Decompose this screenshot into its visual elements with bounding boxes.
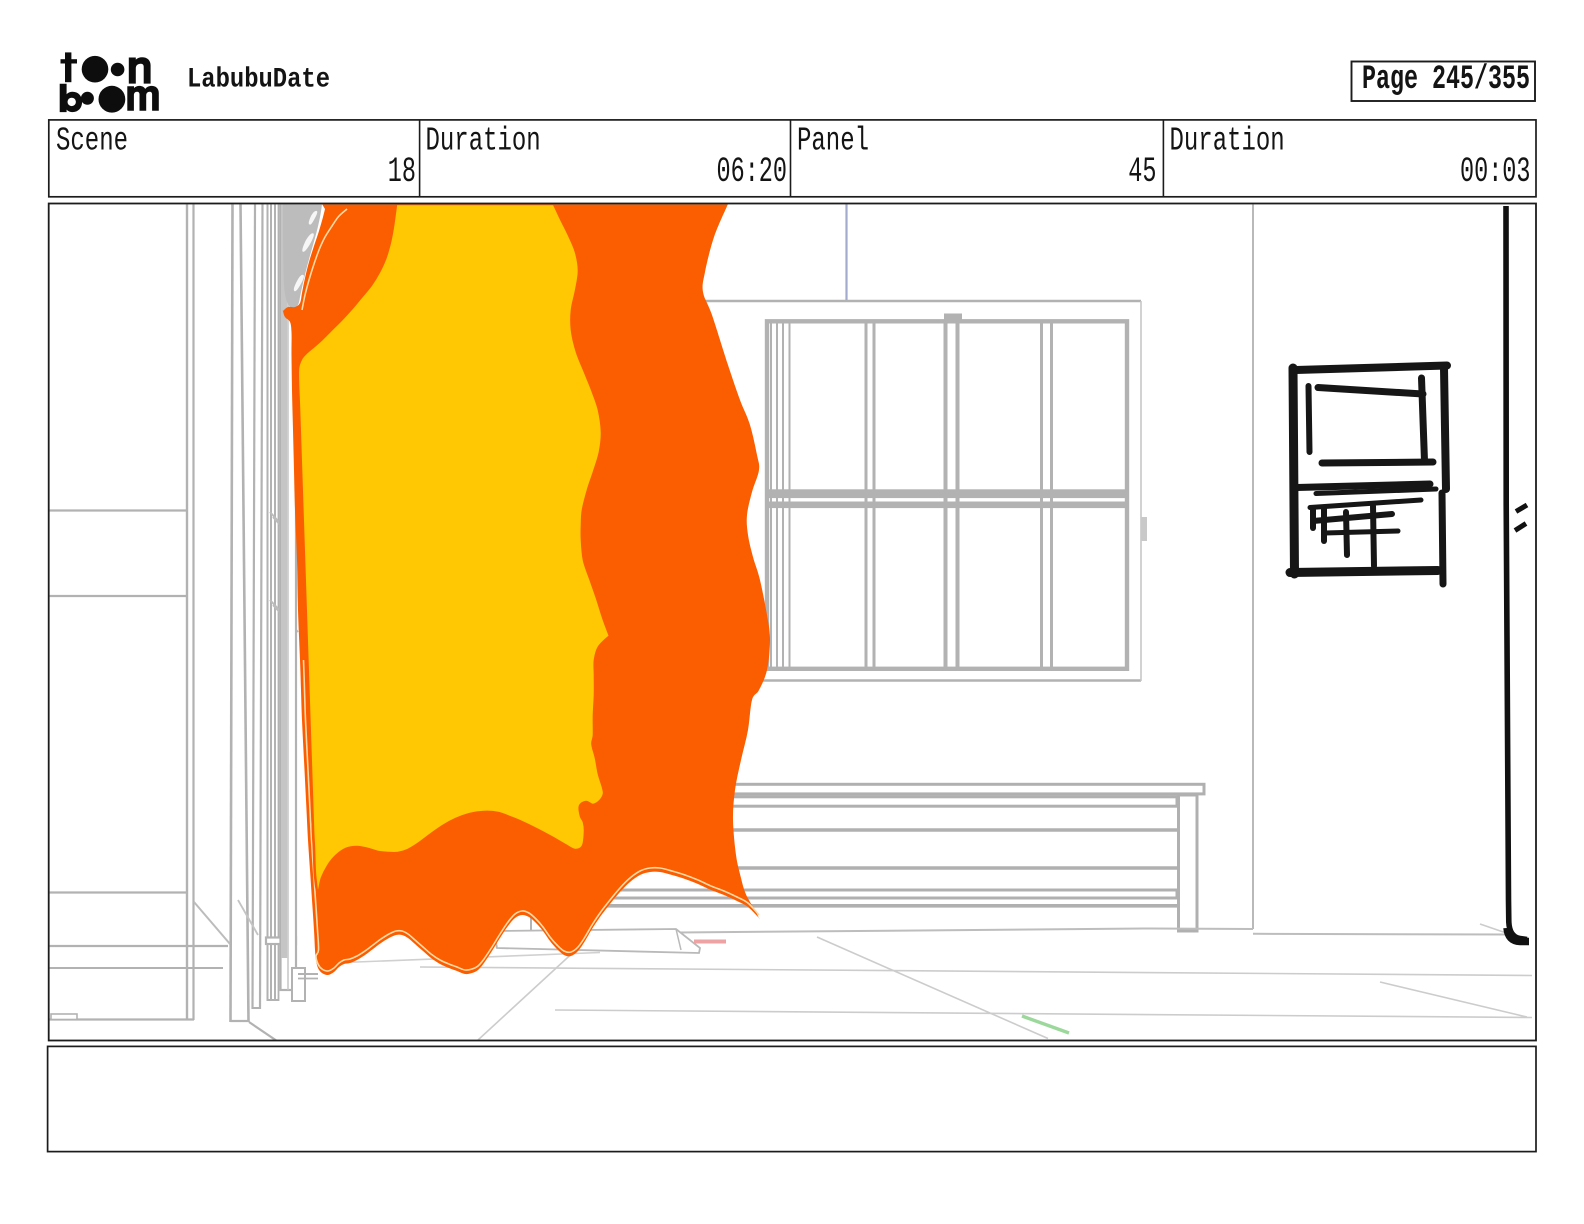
svg-text:00:03: 00:03 — [1460, 152, 1531, 192]
svg-text:Page 245/355: Page 245/355 — [1362, 60, 1530, 99]
svg-text:45: 45 — [1128, 152, 1156, 192]
svg-text:Panel: Panel — [797, 123, 869, 160]
svg-text:Scene: Scene — [56, 123, 128, 160]
svg-text:06:20: 06:20 — [717, 152, 788, 192]
svg-text:18: 18 — [388, 152, 416, 192]
svg-text:Duration: Duration — [1170, 123, 1285, 160]
svg-text:LabubuDate: LabubuDate — [187, 65, 330, 96]
svg-text:Duration: Duration — [426, 123, 541, 160]
